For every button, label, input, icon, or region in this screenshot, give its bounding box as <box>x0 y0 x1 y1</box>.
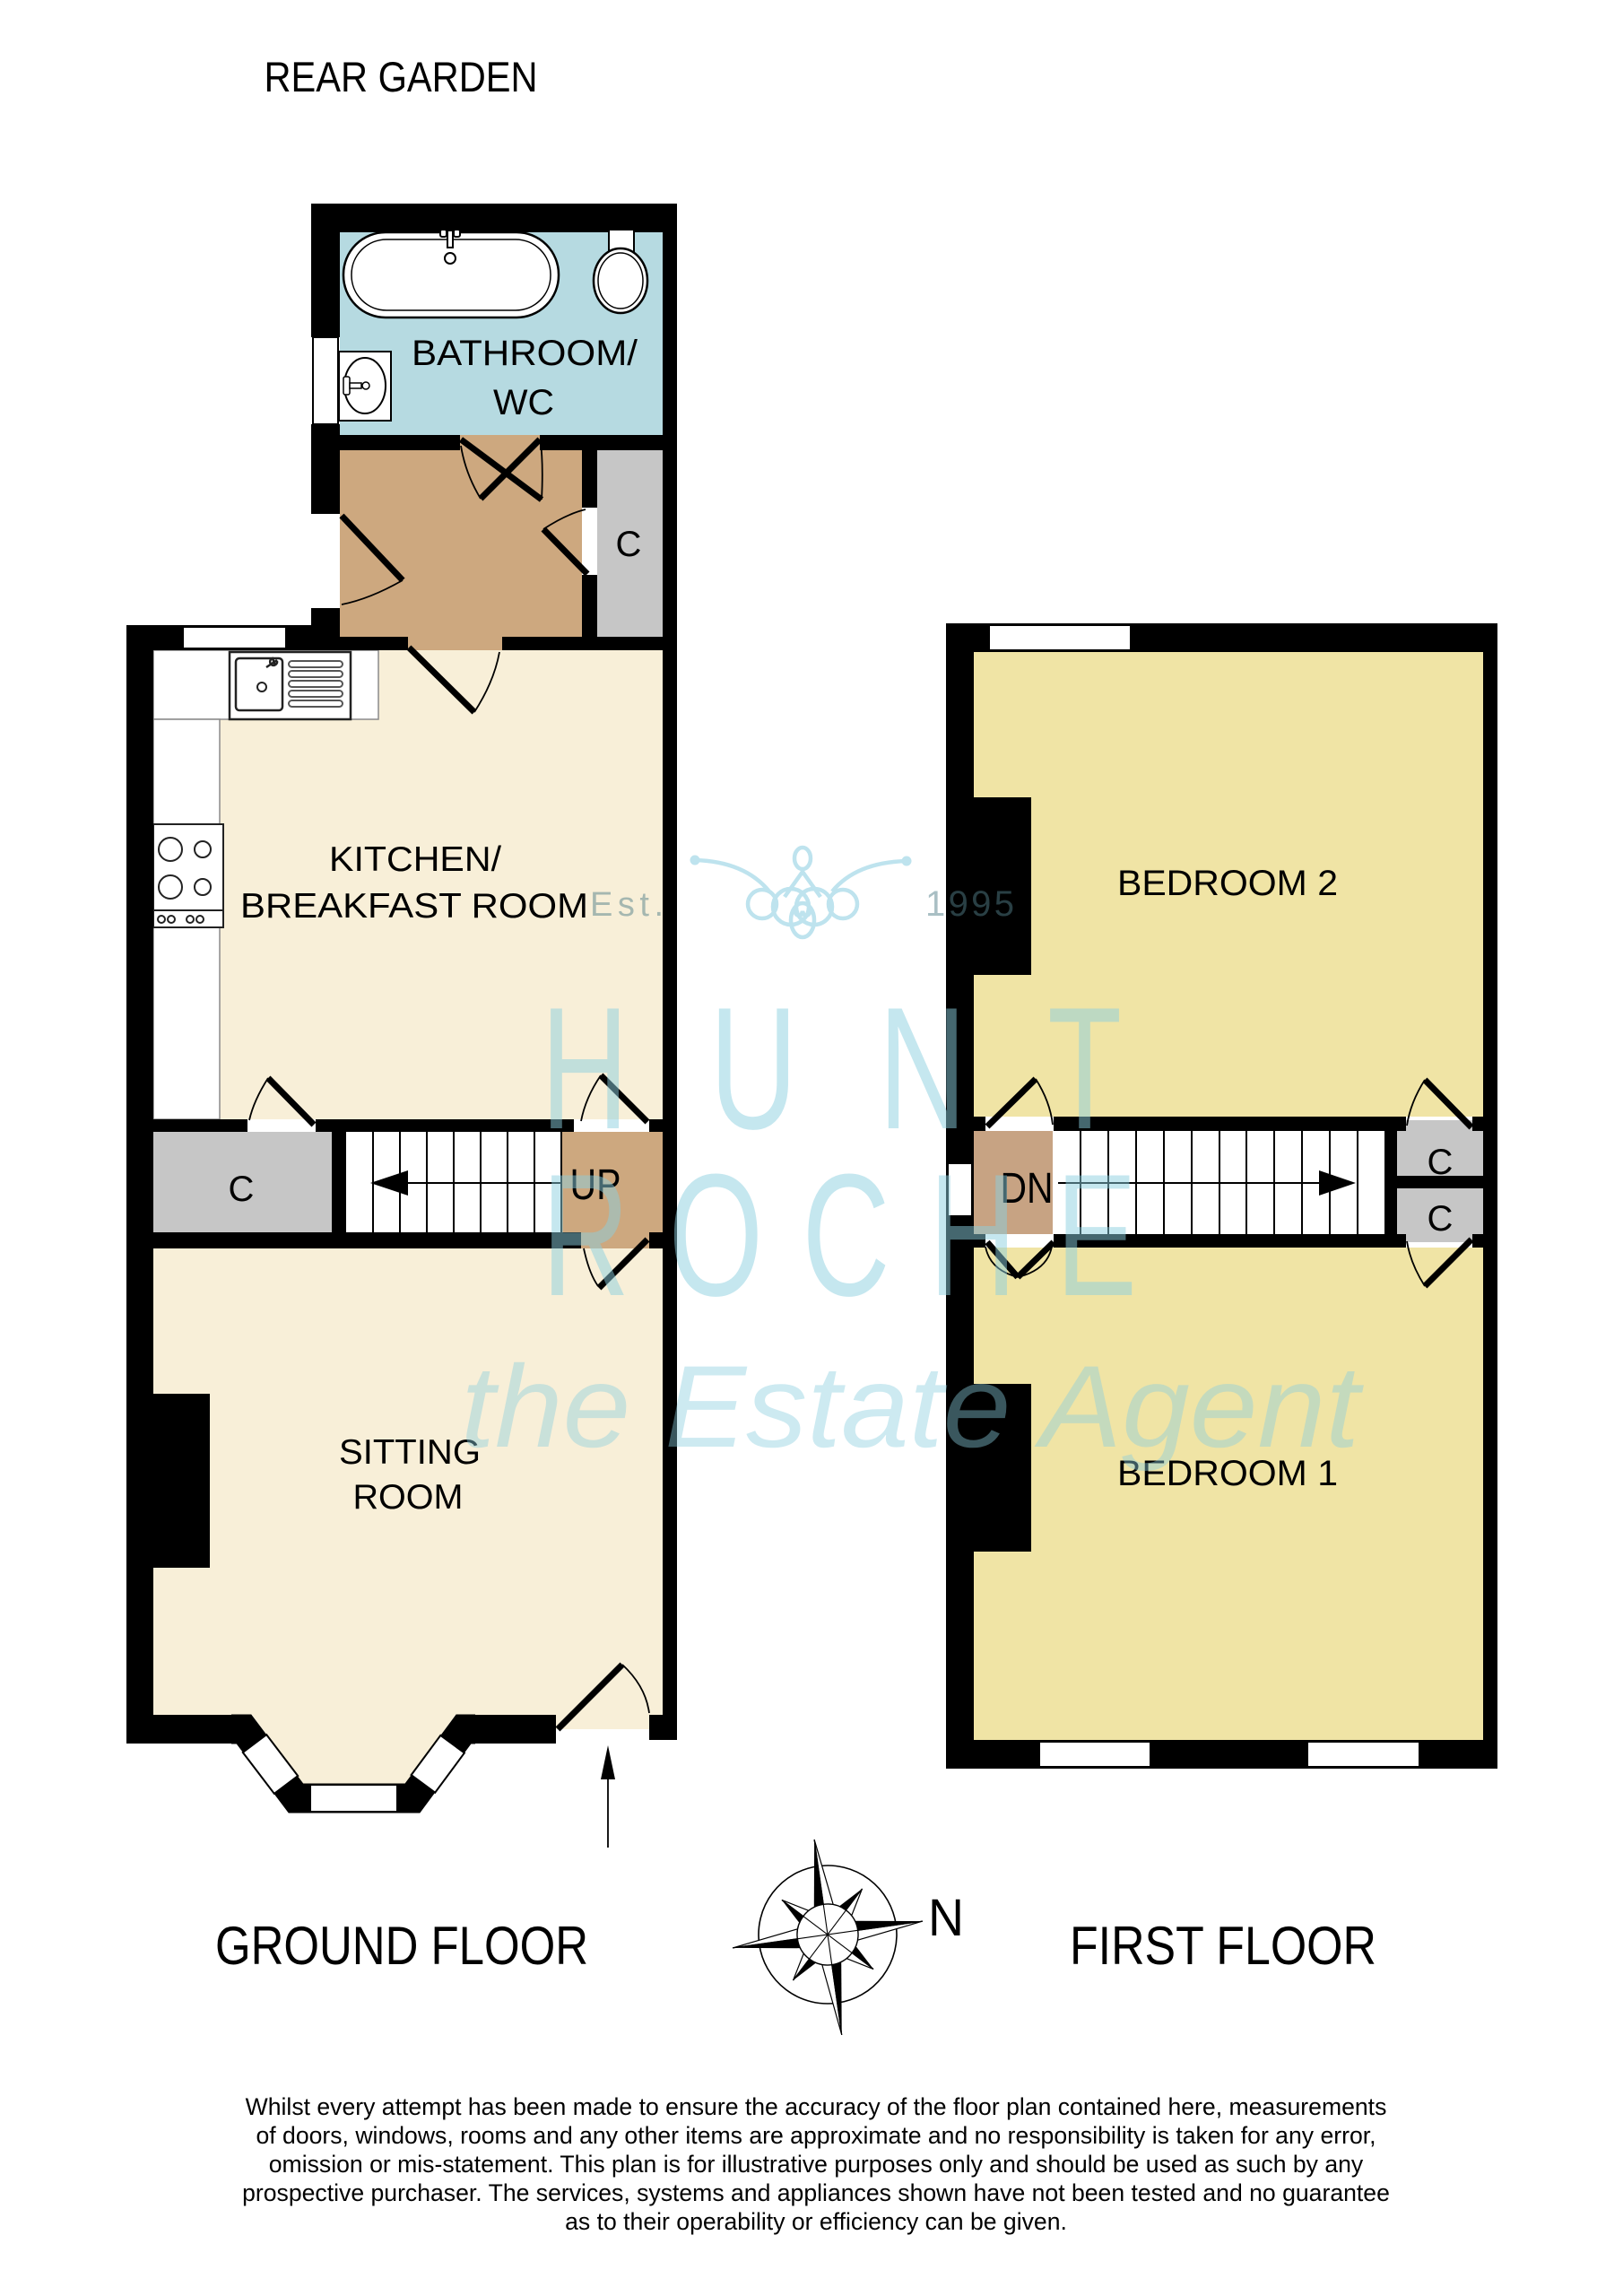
svg-text:the Estate Agent: the Estate Agent <box>461 1342 1364 1472</box>
svg-text:FIRST FLOOR: FIRST FLOOR <box>1070 1916 1376 1976</box>
svg-text:BEDROOM 2: BEDROOM 2 <box>1117 864 1338 903</box>
svg-text:WC: WC <box>493 383 554 422</box>
svg-text:N: N <box>928 1889 964 1947</box>
svg-text:REAR GARDEN: REAR GARDEN <box>265 53 538 100</box>
svg-text:omission or mis-statement. Thi: omission or mis-statement. This plan is … <box>269 2151 1364 2178</box>
svg-text:C: C <box>229 1170 255 1209</box>
svg-text:ROOM: ROOM <box>353 1478 464 1517</box>
svg-text:KITCHEN/: KITCHEN/ <box>329 840 501 879</box>
svg-text:of doors, windows, rooms and a: of doors, windows, rooms and any other i… <box>256 2122 1376 2149</box>
svg-text:as to their operability or eff: as to their operability or efficiency ca… <box>565 2208 1067 2235</box>
svg-text:SITTING: SITTING <box>339 1433 481 1472</box>
svg-text:C: C <box>1428 1143 1454 1182</box>
svg-text:GROUND FLOOR: GROUND FLOOR <box>215 1916 588 1976</box>
svg-text:ROCHE: ROCHE <box>542 1138 1176 1333</box>
svg-text:HUNT: HUNT <box>541 971 1202 1166</box>
svg-text:BREAKFAST ROOM: BREAKFAST ROOM <box>240 887 588 926</box>
svg-text:BATHROOM/: BATHROOM/ <box>412 334 638 373</box>
svg-text:prospective purchaser. The ser: prospective purchaser. The services, sys… <box>242 2179 1390 2206</box>
svg-text:Whilst every attempt has been: Whilst every attempt has been made to en… <box>246 2093 1387 2120</box>
svg-text:C: C <box>1428 1199 1454 1239</box>
svg-text:C: C <box>616 525 642 564</box>
